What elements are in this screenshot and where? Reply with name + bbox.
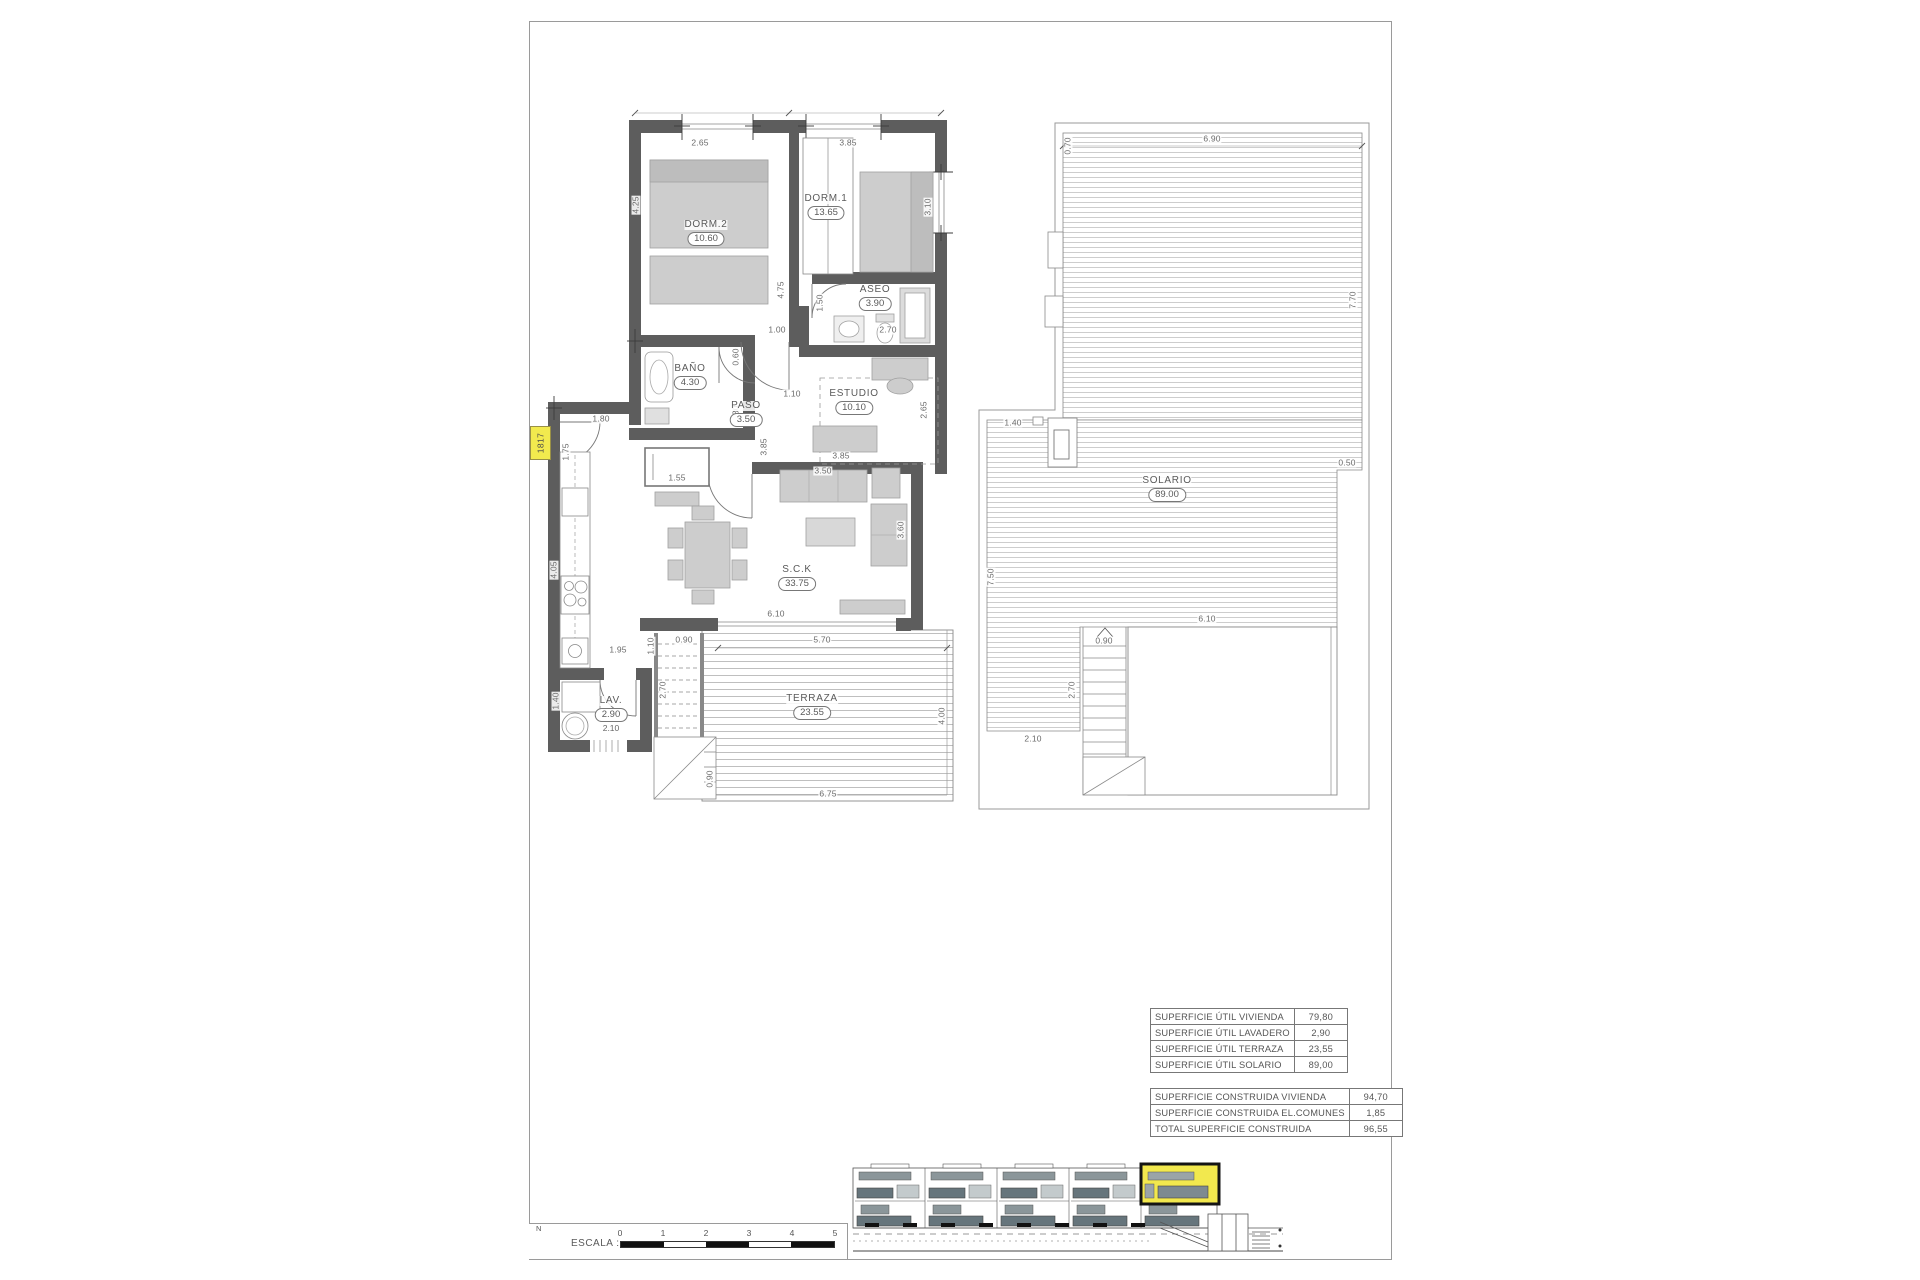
- table-row: SUPERFICIE CONSTRUIDA VIVIENDA 94,70: [1151, 1089, 1403, 1105]
- solario-plan: [979, 123, 1369, 809]
- room-area: 4.30: [674, 376, 707, 390]
- table-value: 96,55: [1349, 1121, 1402, 1137]
- sofa-estudio: [813, 426, 877, 452]
- table-value: 94,70: [1349, 1089, 1402, 1105]
- table-row: SUPERFICIE ÚTIL LAVADERO 2,90: [1151, 1025, 1348, 1041]
- room-name: ASEO: [860, 285, 891, 295]
- dim-label: 0.90: [674, 636, 693, 645]
- building-elevation: [853, 1164, 1283, 1251]
- dim-label: 0.90: [1094, 637, 1113, 646]
- dim-label: 0.60: [732, 347, 741, 366]
- dim-label: 5.70: [812, 636, 831, 645]
- dim-label: 0.70: [1064, 136, 1073, 155]
- dim-label: 3.85: [838, 139, 857, 148]
- dim-label: 2.65: [690, 139, 709, 148]
- table-label: SUPERFICIE ÚTIL TERRAZA: [1151, 1041, 1295, 1057]
- dim-label: 6.10: [766, 610, 785, 619]
- room-label-lav: LAV. 2.90 2.10: [595, 696, 628, 733]
- room-area: 3.90: [859, 297, 892, 311]
- dim-label: 1.50: [816, 293, 825, 312]
- highlighted-unit: [1141, 1164, 1219, 1204]
- table-label: SUPERFICIE ÚTIL VIVIENDA: [1151, 1009, 1295, 1025]
- dim-label: 3.50: [813, 467, 832, 476]
- table-row: SUPERFICIE CONSTRUIDA EL.COMUNES 1,85: [1151, 1105, 1403, 1121]
- dim-label: 3.85: [831, 452, 850, 461]
- table-row: SUPERFICIE ÚTIL TERRAZA 23,55: [1151, 1041, 1348, 1057]
- dim-label: 4.05: [550, 560, 559, 579]
- room-label-estudio: ESTUDIO 10.10: [829, 389, 878, 415]
- dim-label: 6.75: [818, 790, 837, 799]
- table-label: SUPERFICIE CONSTRUIDA VIVIENDA: [1151, 1089, 1350, 1105]
- room-name: SOLARIO: [1142, 476, 1191, 486]
- room-name: TERRAZA: [786, 694, 838, 704]
- room-label-terraza: TERRAZA 23.55: [786, 694, 838, 720]
- room-name: DORM.2: [684, 220, 727, 230]
- solario-upper-deck: [1063, 133, 1362, 420]
- dim-label: 6.90: [1202, 135, 1221, 144]
- dim-label: 7.70: [1349, 290, 1358, 309]
- dim-label: 4.00: [938, 706, 947, 725]
- dim-label: 2.70: [1068, 680, 1077, 699]
- dim-label: 1.10: [782, 390, 801, 399]
- room-name: S.C.K: [782, 565, 812, 575]
- room-name: LAV.: [600, 696, 623, 706]
- dim-label: 6.10: [1197, 615, 1216, 624]
- room-area: 3.50: [730, 413, 763, 427]
- table-label: TOTAL SUPERFICIE CONSTRUIDA: [1151, 1121, 1350, 1137]
- scale-label: ESCALA :: [571, 1238, 619, 1249]
- room-label-aseo: ASEO 3.90: [859, 285, 892, 311]
- north-label: N: [536, 1224, 541, 1233]
- room-area: 2.90: [595, 708, 628, 722]
- table-label: SUPERFICIE ÚTIL SOLARIO: [1151, 1057, 1295, 1073]
- dim-label: 2.10: [1023, 735, 1042, 744]
- dim-label: 1.95: [608, 646, 627, 655]
- room-area: 10.60: [687, 232, 725, 246]
- dining-table: [685, 522, 730, 588]
- floorplan-sheet-page: { "colors": { "accent_yellow": "#f2ea4e"…: [0, 0, 1920, 1280]
- dim-label: 7.50: [987, 567, 996, 586]
- scale-tick: 3: [747, 1228, 752, 1238]
- dim-label: 4.75: [777, 280, 786, 299]
- dim-label: 1.75: [562, 442, 571, 461]
- surface-util-table: SUPERFICIE ÚTIL VIVIENDA 79,80 SUPERFICI…: [1150, 1008, 1348, 1073]
- room-label-solario: SOLARIO 89.00: [1142, 476, 1191, 502]
- dim-label: 2.65: [920, 400, 929, 419]
- room-name: ESTUDIO: [829, 389, 878, 399]
- dim-label: 1.80: [591, 415, 610, 424]
- dim-label: 3.10: [924, 197, 933, 216]
- room-area: 33.75: [778, 577, 816, 591]
- dim-label: 3.60: [897, 520, 906, 539]
- room-name: BAÑO: [674, 364, 705, 374]
- room-label-paso: PASO 3.50: [730, 401, 763, 427]
- scale-tick: 0: [618, 1228, 623, 1238]
- table-value: 89,00: [1294, 1057, 1347, 1073]
- room-area: 13.65: [807, 206, 845, 220]
- surface-construida-table: SUPERFICIE CONSTRUIDA VIVIENDA 94,70 SUP…: [1150, 1088, 1403, 1137]
- desk-estudio: [872, 358, 928, 380]
- scale-tick: 5: [833, 1228, 838, 1238]
- room-area: 23.55: [793, 706, 831, 720]
- dim-label: 2.70: [659, 680, 668, 699]
- room-area: 10.10: [835, 401, 873, 415]
- room-label-dorm1: DORM.1 13.65: [804, 194, 847, 220]
- dim-label: 0.50: [1337, 459, 1356, 468]
- dim-label: 1.40: [552, 691, 561, 710]
- table-value: 2,90: [1294, 1025, 1347, 1041]
- unit-number-tag: 1817: [530, 426, 551, 460]
- architectural-drawing: [0, 0, 1920, 1280]
- table-row: TOTAL SUPERFICIE CONSTRUIDA 96,55: [1151, 1121, 1403, 1137]
- neighbor-terrace-outline: [1128, 627, 1337, 795]
- table-label: SUPERFICIE CONSTRUIDA EL.COMUNES: [1151, 1105, 1350, 1121]
- unit-number: 1817: [536, 433, 546, 454]
- table-value: 23,55: [1294, 1041, 1347, 1057]
- dim-label: 1.40: [1003, 419, 1022, 428]
- scale-bar: [620, 1241, 835, 1248]
- scale-tick: 2: [704, 1228, 709, 1238]
- scale-tick: 1: [661, 1228, 666, 1238]
- scale-tick: 4: [790, 1228, 795, 1238]
- dim-label: 0.90: [706, 769, 715, 788]
- dim-label: 1.55: [667, 474, 686, 483]
- sink-aseo: [839, 321, 859, 337]
- dim-label: 4.25: [632, 195, 641, 214]
- hob: [561, 576, 589, 614]
- room-name: PASO: [731, 401, 761, 411]
- dim-lines: [632, 110, 944, 116]
- room-name: DORM.1: [804, 194, 847, 204]
- dim-label: 1.10: [647, 636, 656, 655]
- table-label: SUPERFICIE ÚTIL LAVADERO: [1151, 1025, 1295, 1041]
- room-area-extra: 2.10: [603, 724, 620, 733]
- dim-label: 2.70: [878, 326, 897, 335]
- table-value: 79,80: [1294, 1009, 1347, 1025]
- room-label-bano: BAÑO 4.30: [674, 364, 707, 390]
- table-row: SUPERFICIE ÚTIL SOLARIO 89,00: [1151, 1057, 1348, 1073]
- room-area: 89.00: [1148, 488, 1186, 502]
- dim-label: 3.85: [760, 437, 769, 456]
- table-row: SUPERFICIE ÚTIL VIVIENDA 79,80: [1151, 1009, 1348, 1025]
- dim-label: 1.00: [767, 326, 786, 335]
- table-value: 1,85: [1349, 1105, 1402, 1121]
- room-label-dorm2: DORM.2 10.60: [684, 220, 727, 246]
- room-label-sck: S.C.K 33.75: [778, 565, 816, 591]
